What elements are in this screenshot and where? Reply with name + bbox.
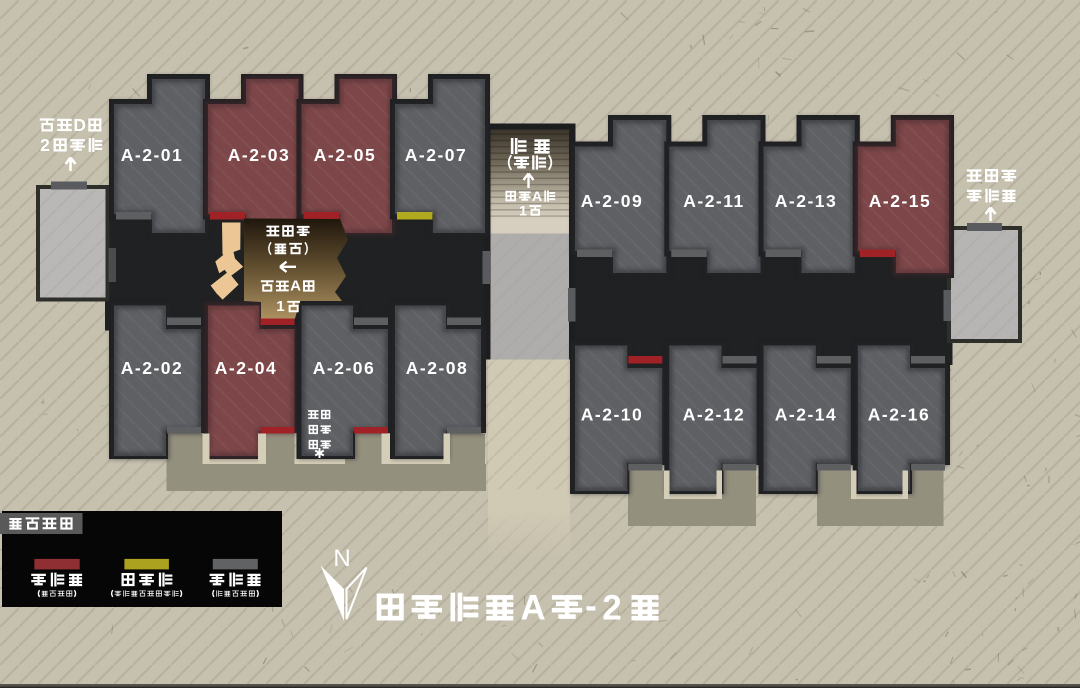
svg-text:A-2-05: A-2-05 [314, 145, 377, 165]
svg-text:D: D [73, 115, 86, 135]
svg-text:A-2-02: A-2-02 [121, 358, 184, 378]
svg-text:A-2-04: A-2-04 [215, 358, 278, 378]
svg-text:A-2-15: A-2-15 [869, 191, 932, 211]
svg-text:2: 2 [602, 589, 621, 628]
svg-text:A-2-14: A-2-14 [775, 405, 838, 425]
svg-text:A-2-10: A-2-10 [581, 405, 644, 425]
svg-text:1: 1 [519, 203, 527, 219]
svg-text:2: 2 [40, 135, 50, 155]
svg-text:A: A [532, 188, 542, 204]
svg-text:A-2-16: A-2-16 [868, 405, 931, 425]
svg-text:A-2-06: A-2-06 [313, 358, 376, 378]
svg-text:A: A [520, 589, 545, 628]
svg-text:N: N [333, 545, 350, 572]
svg-text:A: A [290, 278, 301, 295]
svg-text:A-2-12: A-2-12 [683, 405, 746, 425]
svg-text:A-2-11: A-2-11 [683, 191, 745, 211]
svg-text:-: - [585, 587, 597, 626]
svg-text:A-2-07: A-2-07 [405, 145, 468, 165]
svg-text:A-2-01: A-2-01 [121, 145, 184, 165]
svg-text:A-2-03: A-2-03 [228, 145, 291, 165]
svg-text:A-2-08: A-2-08 [406, 358, 469, 378]
svg-text:1: 1 [276, 298, 284, 315]
svg-text:A-2-13: A-2-13 [775, 191, 838, 211]
svg-text:A-2-09: A-2-09 [581, 191, 644, 211]
